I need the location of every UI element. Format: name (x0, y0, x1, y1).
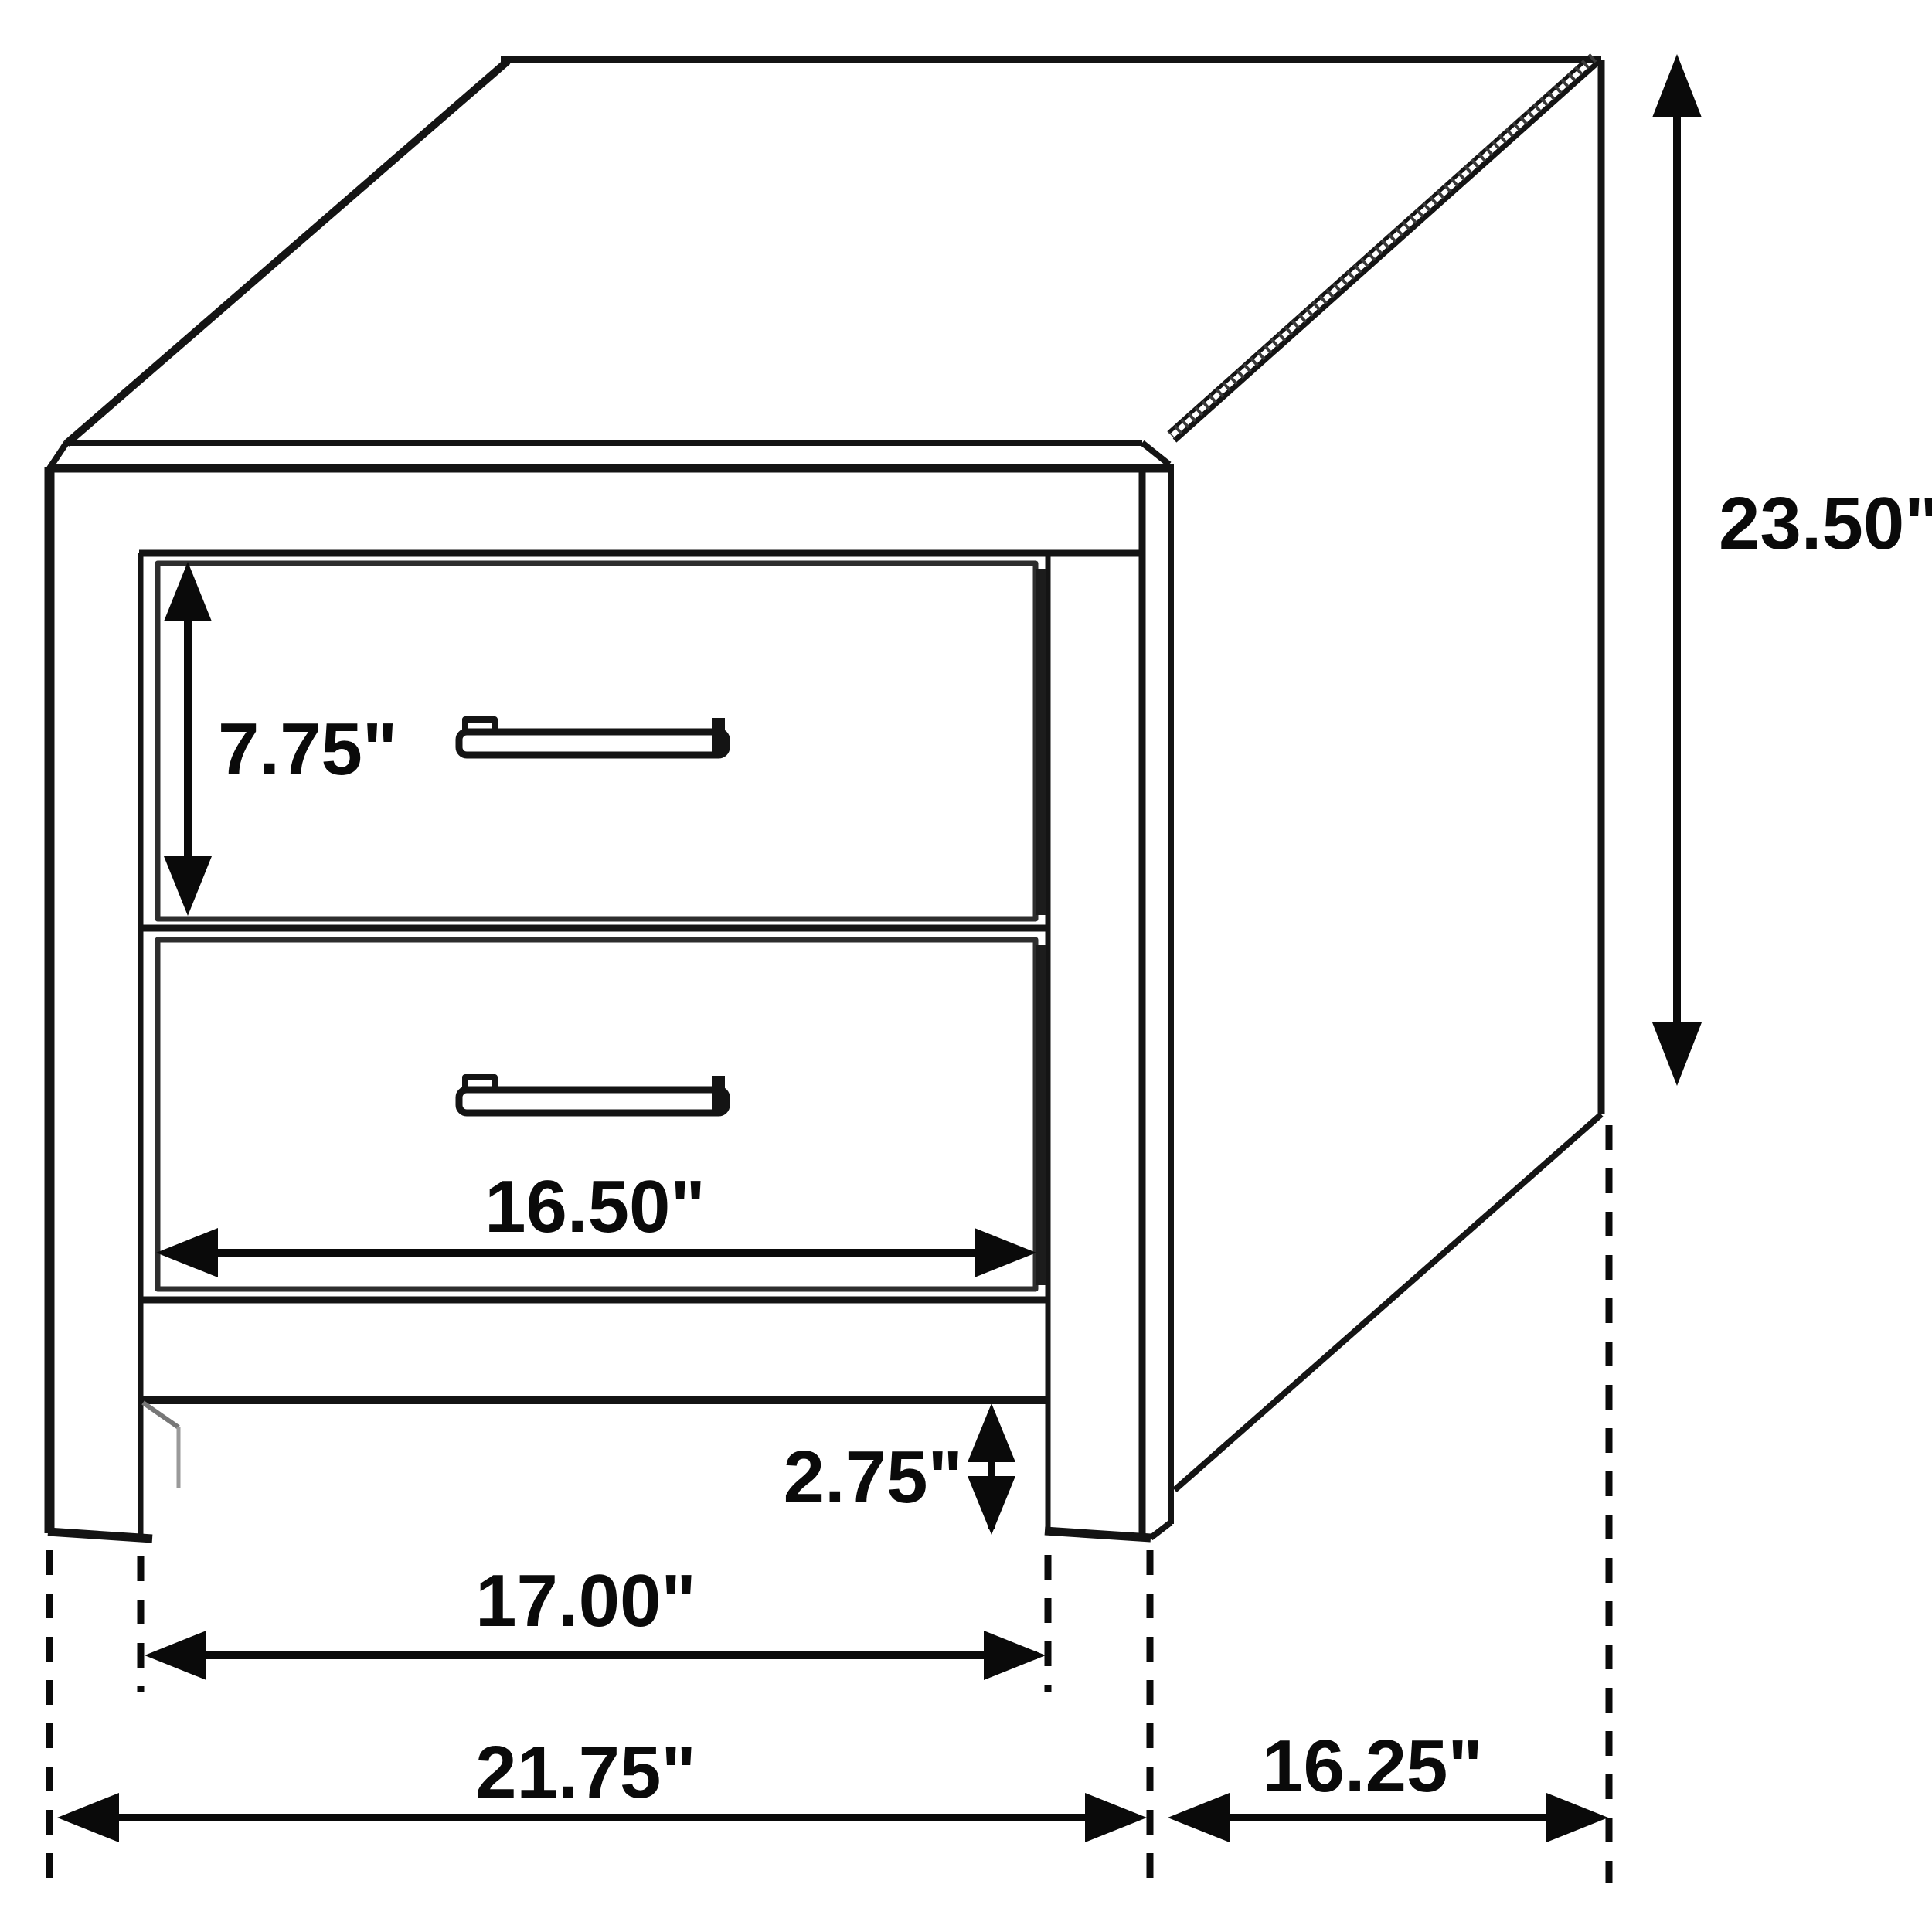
side-foot-diagonal (1151, 1522, 1171, 1538)
drawer-1-handle-right-post (712, 718, 725, 757)
dimension-label-overall-width: 21.75" (475, 1731, 696, 1814)
drawer-2-handle-right-post (712, 1076, 725, 1114)
left-leg-bottom-edge (48, 1532, 152, 1539)
dimension-label-base-clearance: 2.75" (784, 1436, 963, 1519)
top-front-right-corner-edge (1142, 443, 1169, 464)
dimension-base-clearance: 2.75" (784, 1403, 1015, 1535)
arrowhead-up (1652, 54, 1702, 117)
arrowhead-right (1085, 1793, 1147, 1842)
arrowhead-left (1168, 1793, 1230, 1842)
top-panel (49, 57, 1601, 468)
arrowhead-left (57, 1793, 119, 1842)
dimension-label-inner-width: 17.00" (475, 1560, 696, 1642)
drawer-1-handle-bar (459, 732, 726, 755)
nightstand-drawing (48, 57, 1601, 1539)
dimension-label-drawer-height: 7.75" (218, 708, 397, 791)
diagram-page: 7.75" 23.50" 16.50" 2.75" 17 (0, 0, 1932, 1932)
side-bottom-diagonal-edge (1175, 1114, 1601, 1490)
arrowhead-right (1546, 1793, 1608, 1842)
dimension-label-drawer-width: 16.50" (485, 1165, 706, 1248)
arrowhead-right (984, 1631, 1046, 1680)
arrowhead-up (968, 1403, 1015, 1462)
dimension-label-depth: 16.25" (1262, 1725, 1483, 1808)
arrowhead-down (1652, 1022, 1702, 1086)
dimension-depth: 16.25" (1168, 1725, 1608, 1842)
drawer-2-handle-bar (459, 1090, 726, 1113)
dimension-overall-width: 21.75" (57, 1731, 1147, 1842)
dimension-label-overall-height: 23.50" (1719, 482, 1932, 565)
arrowhead-left (145, 1631, 206, 1680)
arrowhead-down (968, 1476, 1015, 1535)
right-leg-bottom-edge (1045, 1531, 1151, 1538)
dimension-overall-height: 23.50" (1652, 54, 1932, 1086)
nightstand-dimension-diagram: 7.75" 23.50" 16.50" 2.75" 17 (0, 0, 1932, 1932)
dimension-inner-width: 17.00" (145, 1560, 1046, 1680)
left-leg-notch-diagonal (143, 1403, 179, 1427)
